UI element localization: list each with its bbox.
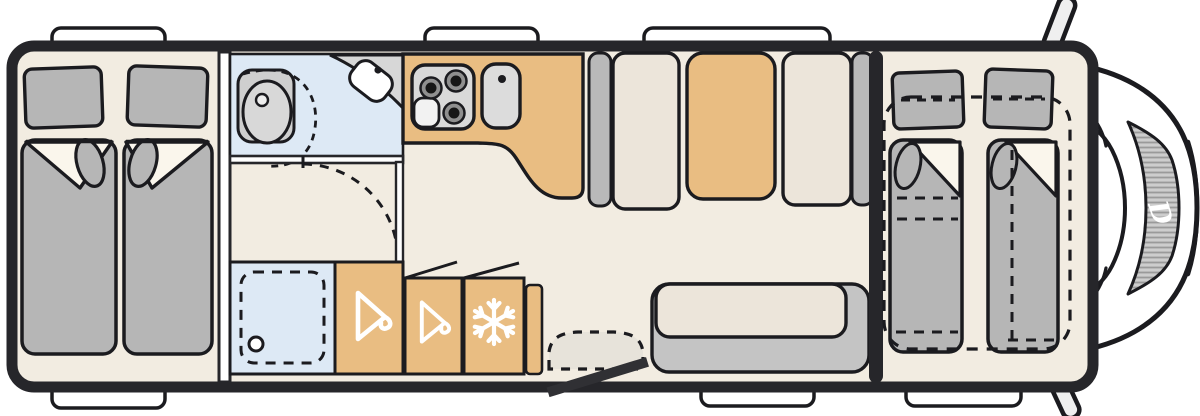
partition-column <box>589 53 611 206</box>
shower-floor <box>230 262 335 374</box>
hall-wall <box>396 162 403 263</box>
wardrobe-1 <box>335 262 403 374</box>
wardrobe-fridge-block <box>335 262 542 374</box>
hob-notch <box>414 98 439 127</box>
faucet-icon <box>374 66 381 73</box>
flush-button <box>256 94 268 106</box>
pillow <box>24 67 103 129</box>
wardrobe-2 <box>405 278 462 374</box>
shower <box>230 262 335 374</box>
drain-icon <box>249 337 263 351</box>
pillow <box>127 66 208 128</box>
cabinet-column <box>613 53 679 209</box>
burner-icon <box>446 71 467 92</box>
burner-icon <box>421 78 442 99</box>
tall-cabinets <box>589 53 873 209</box>
cabinet-column-orange <box>687 53 775 199</box>
bench-seat <box>652 284 869 372</box>
floorplan-canvas: D <box>0 0 1200 416</box>
front-bed-wall <box>869 51 883 383</box>
bench-cushion <box>656 284 846 337</box>
cabinet-column <box>783 53 851 205</box>
faucet-icon <box>498 75 506 83</box>
partition-wall <box>219 52 230 382</box>
side-step <box>526 285 542 374</box>
burner-icon <box>444 103 465 124</box>
motorhome-floorplan: D <box>0 0 1200 416</box>
washroom-wall <box>230 156 403 163</box>
kitchen-sink <box>482 64 520 128</box>
toilet-bowl <box>243 81 291 143</box>
